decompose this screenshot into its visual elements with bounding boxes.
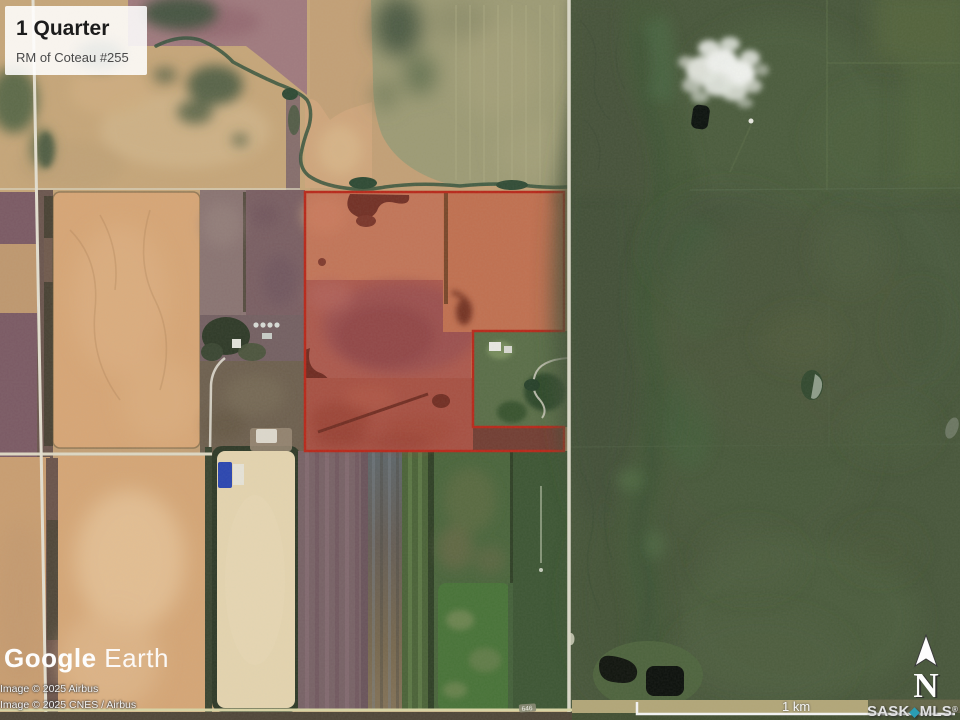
svg-text:N: N: [913, 666, 938, 705]
